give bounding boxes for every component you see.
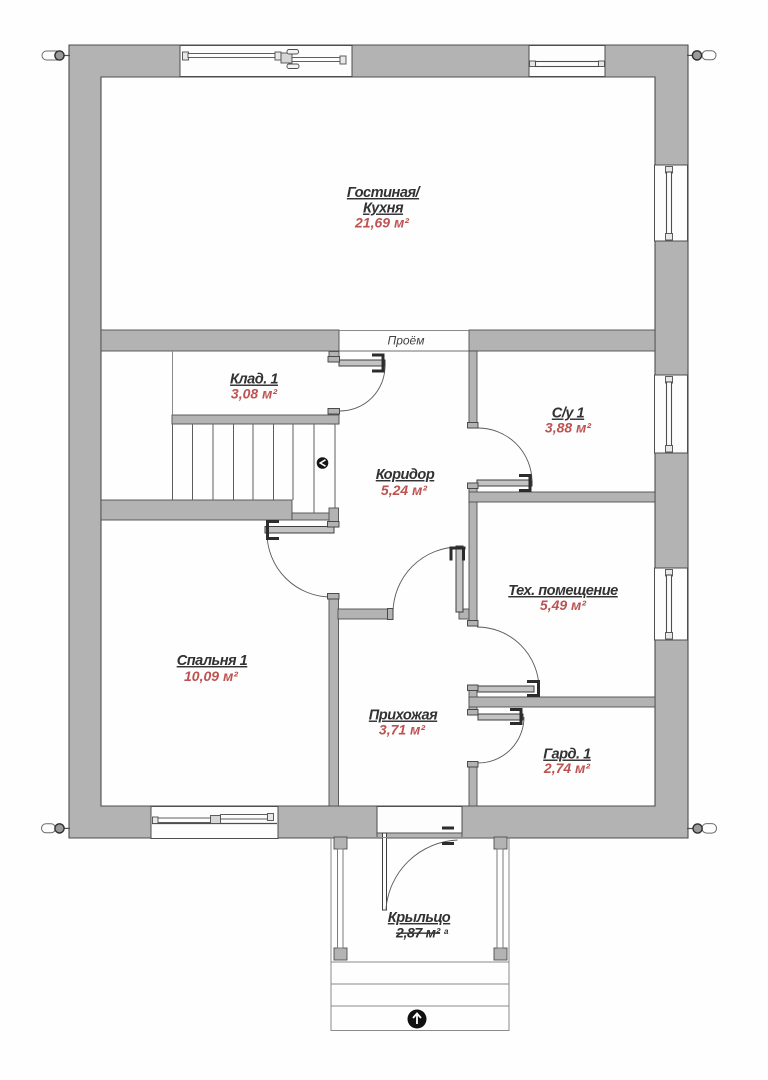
svg-text:Проём: Проём: [388, 334, 425, 348]
svg-text:2,74 м²: 2,74 м²: [543, 760, 590, 776]
svg-text:3,08 м²: 3,08 м²: [231, 386, 277, 402]
svg-text:Гостиная/: Гостиная/: [347, 185, 422, 201]
svg-text:3,71 м²: 3,71 м²: [379, 722, 425, 738]
svg-text:5,49 м²: 5,49 м²: [540, 597, 586, 613]
svg-text:2,87 м²: 2,87 м²: [395, 925, 441, 941]
svg-text:21,69 м²: 21,69 м²: [354, 215, 409, 231]
svg-text:Коридор: Коридор: [376, 467, 435, 483]
svg-text:10,09 м²: 10,09 м²: [184, 668, 238, 684]
svg-text:5,24 м²: 5,24 м²: [381, 482, 427, 498]
svg-text:а: а: [444, 927, 449, 936]
svg-text:3,88 м²: 3,88 м²: [545, 420, 591, 436]
svg-text:Спальня 1: Спальня 1: [177, 653, 248, 669]
